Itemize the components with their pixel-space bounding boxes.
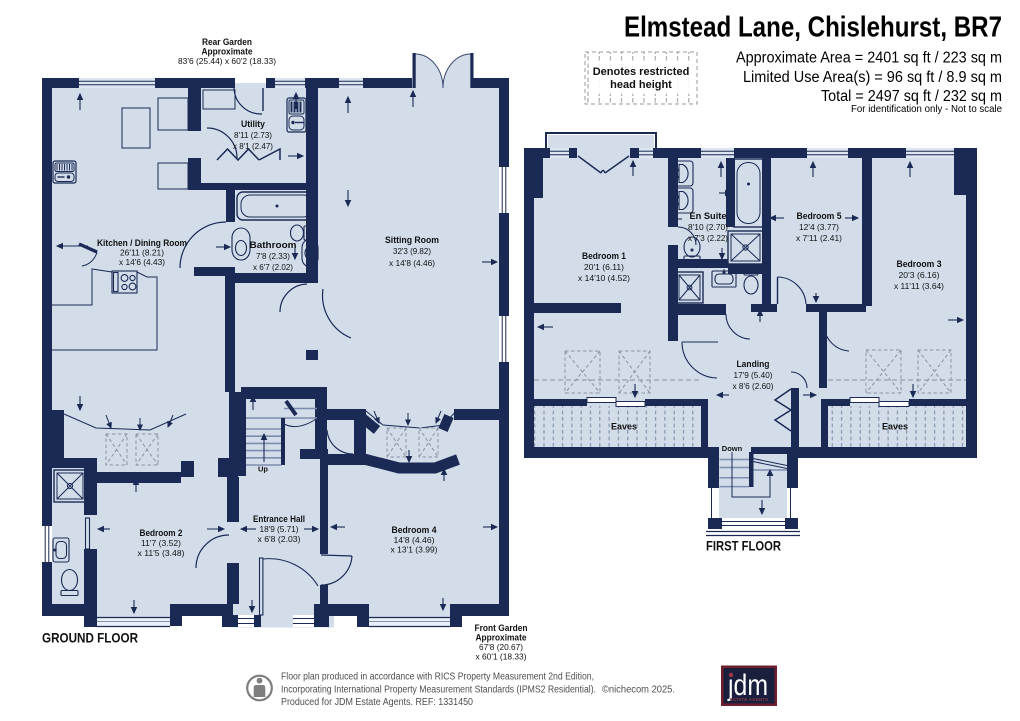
svg-text:8'10 (2.70): 8'10 (2.70): [688, 222, 728, 232]
svg-text:Down: Down: [722, 444, 743, 453]
svg-text:x 6'7 (2.02): x 6'7 (2.02): [253, 262, 293, 272]
svg-text:Approximate Area = 2401 sq ft: Approximate Area = 2401 sq ft / 223 sq m: [736, 50, 1002, 67]
svg-text:x 7'3 (2.22): x 7'3 (2.22): [688, 233, 728, 243]
svg-text:Elmstead Lane, Chislehurst, BR: Elmstead Lane, Chislehurst, BR7: [624, 12, 1002, 44]
svg-text:Bedroom 1: Bedroom 1: [582, 251, 626, 261]
svg-text:x 14'8 (4.46): x 14'8 (4.46): [389, 258, 435, 268]
svg-text:20'3 (6.16): 20'3 (6.16): [899, 270, 940, 280]
svg-text:Floor plan produced in accorda: Floor plan produced in accordance with R…: [281, 672, 594, 683]
svg-text:12'4 (3.77): 12'4 (3.77): [799, 222, 839, 232]
svg-text:Bedroom 2: Bedroom 2: [140, 528, 183, 538]
svg-text:x 8'6 (2.60): x 8'6 (2.60): [733, 381, 774, 391]
svg-text:En Suite: En Suite: [690, 211, 727, 221]
svg-text:Kitchen / Dining Room: Kitchen / Dining Room: [97, 238, 187, 248]
svg-text:x 8'1 (2.47): x 8'1 (2.47): [233, 141, 273, 151]
svg-text:Sitting Room: Sitting Room: [385, 235, 439, 245]
svg-text:Bedroom 3: Bedroom 3: [897, 259, 942, 269]
svg-text:Utility: Utility: [241, 119, 265, 129]
svg-text:FIRST FLOOR: FIRST FLOOR: [706, 538, 781, 554]
svg-text:x 7'11 (2.41): x 7'11 (2.41): [796, 233, 842, 243]
svg-text:Up: Up: [258, 465, 268, 474]
svg-text:GROUND FLOOR: GROUND FLOOR: [42, 630, 138, 646]
svg-text:For identification only - Not: For identification only - Not to scale: [851, 103, 1002, 115]
svg-text:Produced for JDM Estate Agents: Produced for JDM Estate Agents. REF: 133…: [281, 697, 474, 708]
svg-text:x 11'5 (3.48): x 11'5 (3.48): [138, 548, 185, 558]
svg-text:x 13'1 (3.99): x 13'1 (3.99): [391, 545, 438, 555]
svg-text:Approximate: Approximate: [202, 47, 253, 57]
svg-text:17'9 (5.40): 17'9 (5.40): [734, 370, 773, 380]
svg-text:x 60'1 (18.33): x 60'1 (18.33): [476, 652, 527, 662]
svg-text:Rear Garden: Rear Garden: [202, 37, 252, 47]
svg-text:Eaves: Eaves: [882, 422, 908, 432]
svg-text:7'8 (2.33): 7'8 (2.33): [256, 251, 290, 261]
svg-text:Incorporating International Pr: Incorporating International Property Mea…: [281, 684, 596, 695]
svg-text:ESTATE AGENTS: ESTATE AGENTS: [730, 697, 769, 702]
svg-text:8'11 (2.73): 8'11 (2.73): [234, 130, 272, 140]
svg-text:x 14'6 (4.43): x 14'6 (4.43): [119, 257, 165, 267]
svg-text:Bedroom 5: Bedroom 5: [797, 211, 842, 221]
svg-text:Approximate: Approximate: [476, 633, 527, 643]
svg-text:18'9 (5.71): 18'9 (5.71): [260, 524, 299, 534]
svg-text:Entrance Hall: Entrance Hall: [253, 514, 305, 524]
svg-text:x 6'8 (2.03): x 6'8 (2.03): [258, 534, 301, 544]
svg-text:Landing: Landing: [737, 359, 770, 369]
svg-text:11'7 (3.52): 11'7 (3.52): [141, 538, 181, 548]
svg-text:Bathroom: Bathroom: [250, 240, 297, 250]
svg-text:Front Garden: Front Garden: [475, 623, 528, 633]
svg-text:14'8 (4.46): 14'8 (4.46): [394, 535, 435, 545]
svg-text:Denotes restricted: Denotes restricted: [593, 66, 690, 78]
svg-text:x 11'11 (3.64): x 11'11 (3.64): [894, 281, 944, 291]
svg-text:Eaves: Eaves: [611, 422, 637, 432]
svg-text:83'6 (25.44) x 60'2 (18.33): 83'6 (25.44) x 60'2 (18.33): [178, 56, 276, 66]
svg-text:head height: head height: [610, 79, 672, 91]
svg-text:Limited Use Area(s) = 96 sq ft: Limited Use Area(s) = 96 sq ft / 8.9 sq …: [743, 69, 1002, 86]
svg-text:©nichecom 2025.: ©nichecom 2025.: [602, 684, 675, 695]
svg-text:26'11 (8.21): 26'11 (8.21): [120, 248, 164, 258]
svg-text:67'8 (20.67): 67'8 (20.67): [479, 642, 523, 652]
svg-text:20'1 (6.11): 20'1 (6.11): [584, 262, 624, 272]
svg-text:32'3 (9.82): 32'3 (9.82): [393, 246, 431, 256]
svg-text:Bedroom 4: Bedroom 4: [392, 525, 437, 535]
svg-text:x 14'10 (4.52): x 14'10 (4.52): [578, 273, 630, 283]
